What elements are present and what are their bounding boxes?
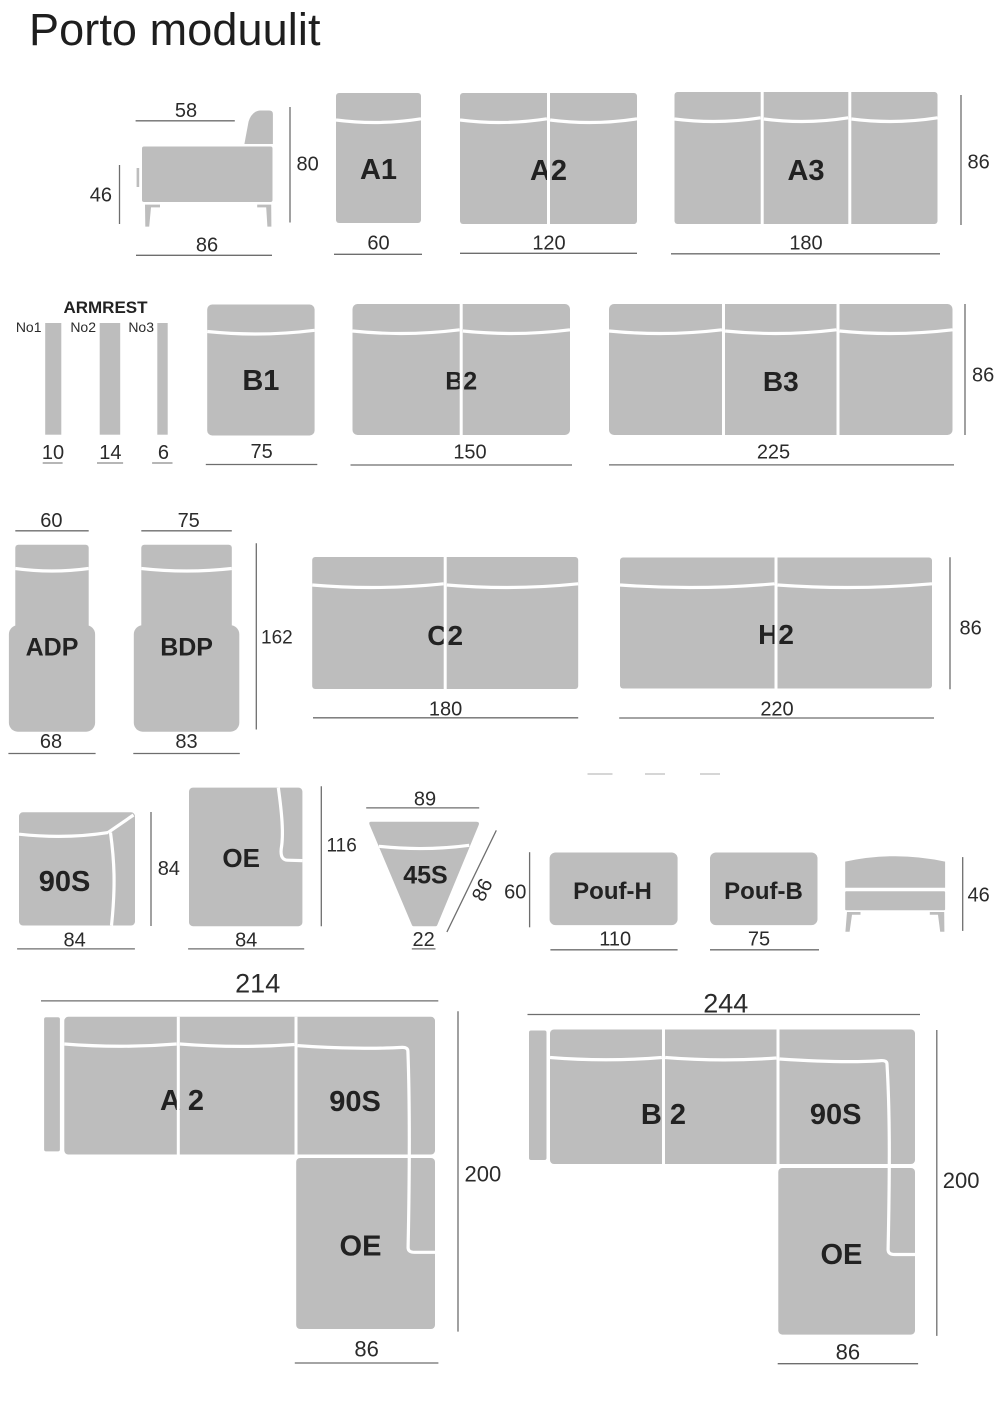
svg-text:225: 225	[757, 442, 790, 464]
svg-text:60: 60	[504, 882, 526, 904]
svg-text:75: 75	[748, 928, 770, 950]
svg-text:46: 46	[968, 885, 990, 907]
svg-text:116: 116	[327, 835, 357, 856]
svg-text:OE: OE	[820, 1239, 862, 1271]
svg-text:84: 84	[158, 858, 180, 880]
svg-text:68: 68	[40, 731, 62, 753]
svg-text:46: 46	[90, 185, 112, 207]
svg-text:BDP: BDP	[160, 634, 213, 662]
svg-text:A 2: A 2	[160, 1085, 204, 1117]
svg-text:83: 83	[175, 731, 197, 753]
svg-text:214: 214	[235, 969, 280, 999]
svg-text:200: 200	[943, 1168, 980, 1193]
svg-text:90S: 90S	[329, 1086, 381, 1118]
svg-text:Porto moduulit: Porto moduulit	[29, 4, 321, 55]
svg-text:22: 22	[412, 929, 434, 951]
svg-text:6: 6	[158, 442, 169, 464]
svg-text:OE: OE	[222, 843, 260, 873]
svg-text:No2: No2	[70, 319, 96, 335]
svg-text:90S: 90S	[810, 1099, 862, 1131]
svg-text:60: 60	[367, 233, 389, 255]
svg-text:Pouf-H: Pouf-H	[573, 878, 652, 905]
svg-text:45S: 45S	[403, 862, 447, 890]
svg-text:No3: No3	[128, 319, 154, 335]
svg-text:150: 150	[453, 442, 486, 464]
svg-text:60: 60	[40, 510, 62, 532]
svg-text:B3: B3	[763, 366, 799, 397]
svg-text:162: 162	[261, 628, 293, 649]
svg-text:A3: A3	[787, 155, 824, 187]
svg-text:Pouf-B: Pouf-B	[724, 878, 803, 905]
svg-text:86: 86	[836, 1340, 860, 1365]
svg-text:ADP: ADP	[26, 634, 79, 662]
svg-text:OE: OE	[340, 1231, 382, 1263]
svg-text:14: 14	[99, 442, 121, 464]
svg-text:86: 86	[196, 235, 218, 257]
svg-text:No1: No1	[16, 319, 42, 335]
svg-text:120: 120	[532, 233, 565, 255]
svg-text:220: 220	[760, 699, 793, 721]
svg-text:86: 86	[972, 365, 994, 387]
svg-text:B1: B1	[242, 365, 279, 397]
svg-text:84: 84	[63, 930, 85, 952]
svg-text:10: 10	[42, 442, 64, 464]
svg-text:90S: 90S	[39, 866, 91, 898]
svg-text:75: 75	[250, 441, 272, 463]
svg-text:75: 75	[178, 510, 200, 532]
svg-text:200: 200	[465, 1162, 502, 1187]
svg-text:86: 86	[960, 618, 982, 640]
svg-text:110: 110	[599, 928, 631, 950]
svg-text:58: 58	[175, 100, 197, 122]
svg-text:80: 80	[297, 154, 319, 176]
svg-text:ARMREST: ARMREST	[63, 298, 148, 317]
svg-text:84: 84	[235, 930, 257, 952]
svg-text:86: 86	[968, 152, 990, 174]
svg-text:180: 180	[789, 233, 822, 255]
svg-text:89: 89	[414, 789, 436, 811]
svg-text:86: 86	[354, 1337, 378, 1362]
svg-text:A1: A1	[360, 154, 397, 186]
